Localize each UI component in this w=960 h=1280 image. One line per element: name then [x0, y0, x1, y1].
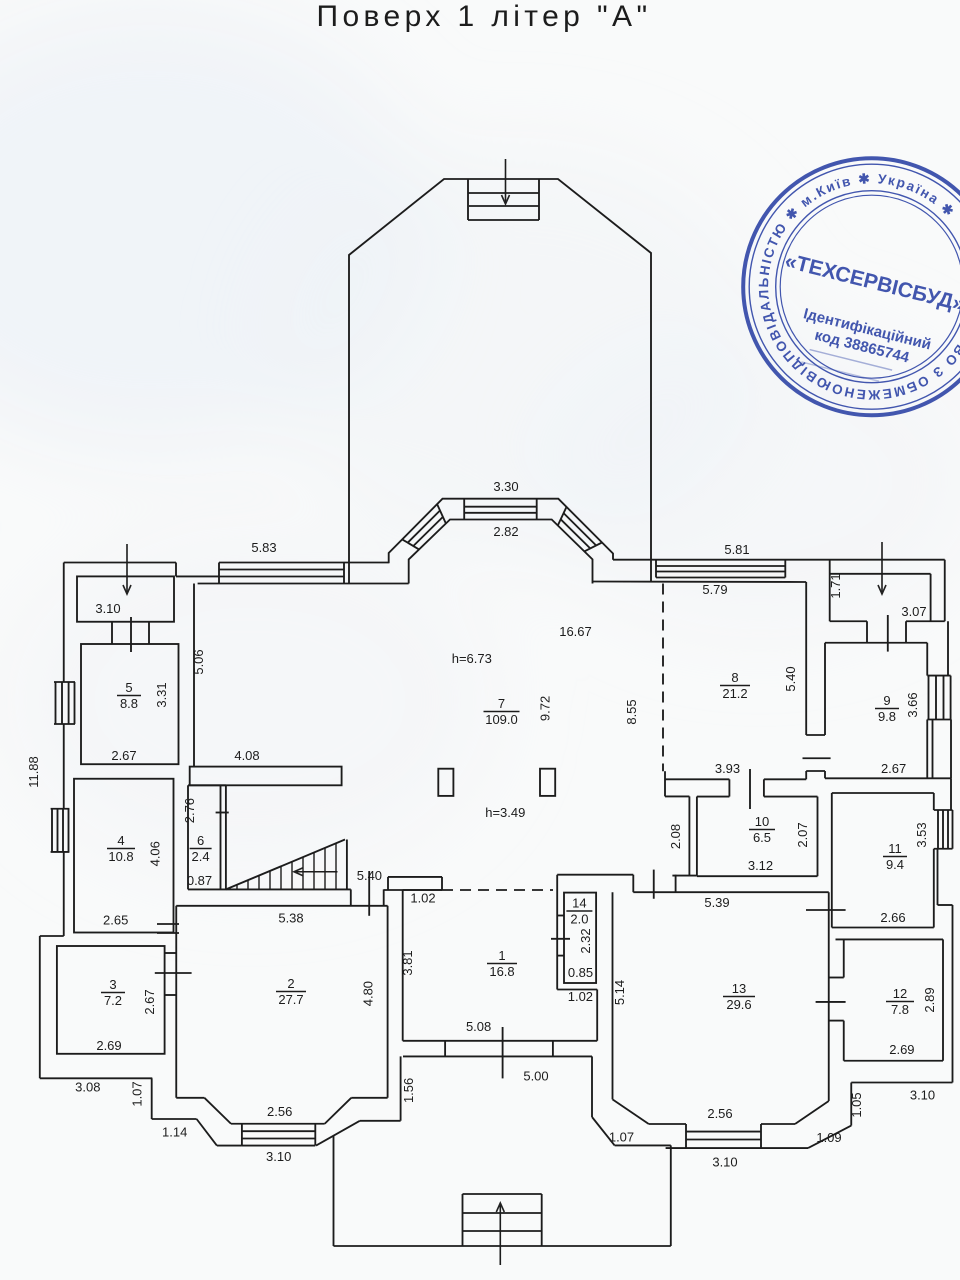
- svg-text:9.8: 9.8: [878, 709, 896, 724]
- svg-text:1.14: 1.14: [162, 1125, 187, 1140]
- svg-text:1.02: 1.02: [568, 989, 593, 1004]
- svg-text:1.02: 1.02: [410, 891, 435, 906]
- svg-text:5: 5: [125, 680, 132, 695]
- svg-text:2.32: 2.32: [578, 928, 593, 953]
- svg-text:2.56: 2.56: [267, 1104, 292, 1119]
- svg-text:16.67: 16.67: [559, 624, 592, 639]
- svg-text:3.93: 3.93: [715, 761, 740, 776]
- svg-text:9.4: 9.4: [886, 857, 904, 872]
- svg-text:27.7: 27.7: [278, 992, 303, 1007]
- svg-text:3.10: 3.10: [266, 1149, 291, 1164]
- svg-text:5.40: 5.40: [783, 666, 798, 691]
- svg-text:10: 10: [755, 814, 769, 829]
- svg-text:2.76: 2.76: [182, 798, 197, 823]
- svg-text:3.66: 3.66: [905, 692, 920, 717]
- svg-text:2.4: 2.4: [192, 849, 210, 864]
- svg-text:3.30: 3.30: [493, 479, 518, 494]
- svg-text:2.07: 2.07: [795, 822, 810, 847]
- svg-text:2.67: 2.67: [111, 748, 136, 763]
- svg-text:5.39: 5.39: [704, 895, 729, 910]
- svg-text:1: 1: [498, 948, 505, 963]
- svg-text:16.8: 16.8: [489, 964, 514, 979]
- svg-text:2.69: 2.69: [96, 1038, 121, 1053]
- svg-text:1.71: 1.71: [828, 573, 843, 598]
- svg-text:10.8: 10.8: [108, 849, 133, 864]
- svg-text:2.56: 2.56: [707, 1106, 732, 1121]
- svg-text:3.31: 3.31: [154, 682, 169, 707]
- svg-text:3: 3: [109, 977, 116, 992]
- svg-text:12: 12: [893, 986, 907, 1001]
- svg-text:2.67: 2.67: [142, 989, 157, 1014]
- svg-text:0.85: 0.85: [568, 965, 593, 980]
- svg-text:5.83: 5.83: [251, 540, 276, 555]
- svg-text:13: 13: [732, 981, 746, 996]
- svg-text:8.55: 8.55: [624, 699, 639, 724]
- svg-text:7.2: 7.2: [104, 993, 122, 1008]
- svg-text:4.80: 4.80: [361, 981, 376, 1006]
- svg-text:h=3.49: h=3.49: [485, 805, 525, 820]
- svg-text:9.72: 9.72: [538, 696, 553, 721]
- svg-text:21.2: 21.2: [722, 686, 747, 701]
- svg-text:1.07: 1.07: [609, 1130, 634, 1145]
- svg-text:11.88: 11.88: [26, 756, 41, 788]
- svg-text:Поверх 1 літер "А": Поверх 1 літер "А": [316, 0, 651, 33]
- svg-text:8.8: 8.8: [120, 696, 138, 711]
- svg-text:2.89: 2.89: [922, 987, 937, 1012]
- svg-text:4.06: 4.06: [147, 841, 162, 866]
- svg-text:2.0: 2.0: [570, 912, 588, 927]
- svg-text:2.69: 2.69: [889, 1042, 914, 1057]
- svg-text:8: 8: [731, 670, 738, 685]
- svg-text:14: 14: [572, 896, 586, 911]
- svg-text:5.38: 5.38: [278, 911, 303, 926]
- svg-text:3.10: 3.10: [712, 1155, 737, 1170]
- svg-text:1.07: 1.07: [130, 1081, 145, 1106]
- svg-text:2: 2: [287, 976, 294, 991]
- svg-text:0.87: 0.87: [187, 873, 212, 888]
- svg-text:2.66: 2.66: [880, 910, 905, 925]
- svg-text:5.81: 5.81: [724, 542, 749, 557]
- svg-text:11: 11: [888, 841, 902, 856]
- svg-text:5.08: 5.08: [466, 1019, 491, 1034]
- svg-text:5.14: 5.14: [612, 980, 627, 1005]
- svg-text:3.81: 3.81: [400, 950, 415, 975]
- svg-text:4: 4: [117, 833, 124, 848]
- svg-text:3.10: 3.10: [910, 1088, 935, 1103]
- svg-text:2.82: 2.82: [493, 524, 518, 539]
- svg-text:3.07: 3.07: [901, 604, 926, 619]
- svg-text:1.56: 1.56: [401, 1078, 416, 1103]
- svg-text:9: 9: [883, 693, 890, 708]
- svg-text:7.8: 7.8: [891, 1002, 909, 1017]
- svg-text:3.10: 3.10: [95, 601, 120, 616]
- svg-text:6: 6: [197, 833, 204, 848]
- svg-text:5.79: 5.79: [702, 582, 727, 597]
- svg-text:3.08: 3.08: [75, 1080, 100, 1095]
- svg-text:3.53: 3.53: [914, 822, 929, 847]
- svg-text:1.09: 1.09: [816, 1130, 841, 1145]
- svg-text:5.06: 5.06: [191, 649, 206, 674]
- svg-text:1.05: 1.05: [849, 1092, 864, 1117]
- svg-text:h=6.73: h=6.73: [452, 651, 492, 666]
- svg-text:2.08: 2.08: [668, 824, 683, 849]
- svg-text:2.65: 2.65: [103, 913, 128, 928]
- svg-text:5.00: 5.00: [523, 1069, 548, 1084]
- svg-text:5.40: 5.40: [357, 868, 382, 883]
- svg-text:6.5: 6.5: [753, 830, 771, 845]
- svg-text:29.6: 29.6: [726, 997, 751, 1012]
- svg-text:3.12: 3.12: [748, 858, 773, 873]
- svg-text:109.0: 109.0: [485, 712, 518, 727]
- svg-text:4.08: 4.08: [234, 748, 259, 763]
- svg-text:2.67: 2.67: [881, 761, 906, 776]
- svg-text:7: 7: [498, 696, 505, 711]
